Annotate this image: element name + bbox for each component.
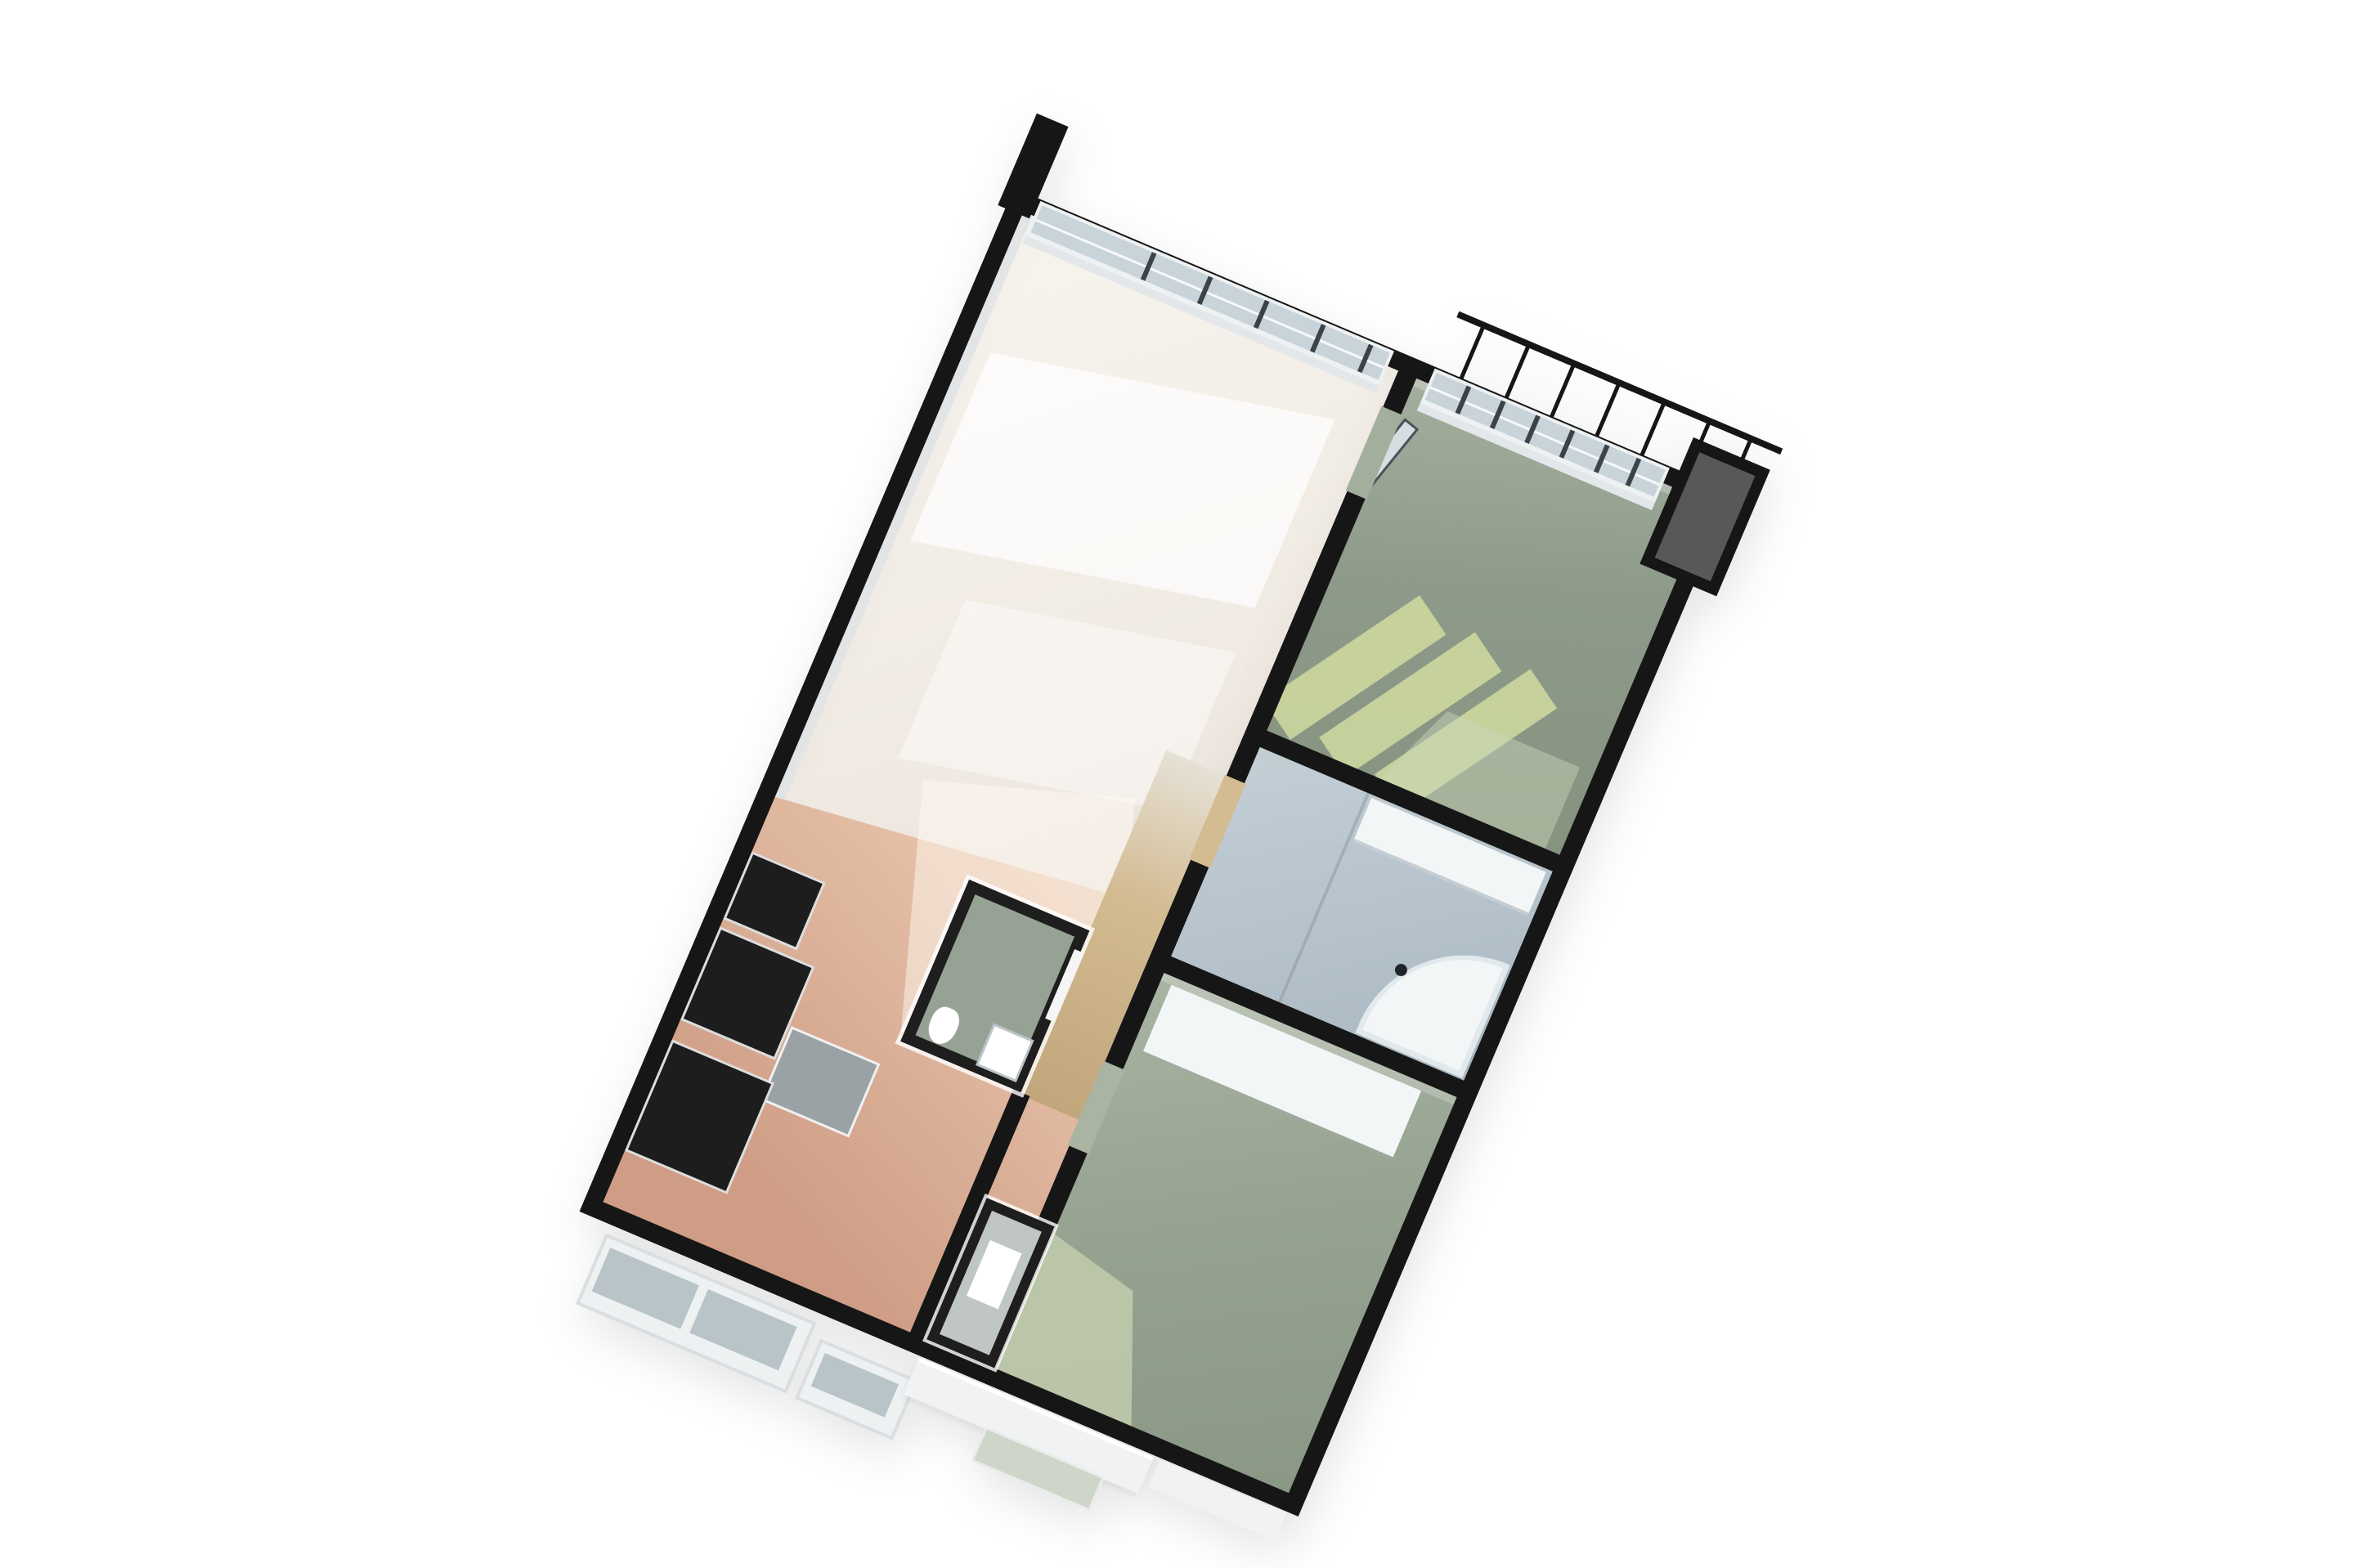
- exterior-window-glass: [811, 1353, 899, 1418]
- railing-post: [1459, 328, 1484, 381]
- railing-post: [1504, 347, 1529, 400]
- exterior-window-sill: [795, 1338, 918, 1440]
- railing-post: [1595, 385, 1620, 438]
- toilet: [923, 1003, 963, 1049]
- closet-fixture: [967, 1240, 1022, 1310]
- exterior-window-glass: [592, 1248, 699, 1328]
- sunlight-patch: [910, 352, 1334, 607]
- shower-tray: [976, 1023, 1034, 1082]
- floor-plan-render: [0, 0, 2355, 1568]
- railing-post: [1550, 365, 1575, 419]
- exterior-window-glass: [689, 1289, 796, 1370]
- apartment-floor-plan: [580, 188, 1733, 1516]
- shower-screen: [1278, 792, 1370, 1002]
- wall-stub: [998, 114, 1068, 219]
- railing-post: [1640, 404, 1665, 457]
